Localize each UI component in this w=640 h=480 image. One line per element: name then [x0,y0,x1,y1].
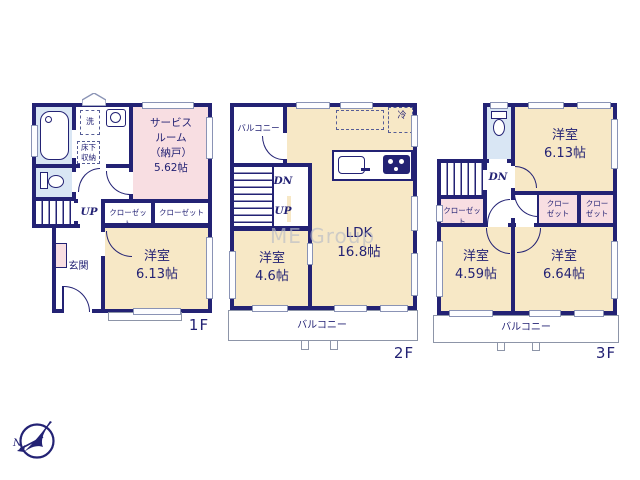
window-marker [490,102,508,109]
stairs [234,167,272,226]
entrance-label: 玄関 [56,260,101,274]
window-marker [206,237,213,299]
window-marker [529,310,561,317]
counter-space [336,110,384,130]
floor-label-2f: 2F [390,343,418,364]
bay-vent-marker [82,93,106,106]
stove-burner [394,167,398,171]
western-room-label: 洋室 6.13帖 [533,127,597,164]
door-opening [489,159,507,163]
door-opening [72,172,76,192]
window-marker [574,310,604,317]
dn-label: DN [485,171,511,183]
door-opening [511,200,515,218]
room-ldk [287,107,312,163]
stove-burner [388,159,393,164]
door-panel [62,286,64,312]
window-marker [611,241,618,299]
closet-label: クロー ゼット [541,199,575,219]
up-label: UP [271,205,295,217]
western-room-label: 洋室 4.6帖 [238,250,306,287]
faucet-icon [361,168,370,171]
door-opening [72,130,76,158]
outline-notch [433,99,483,159]
door-opening [101,232,105,256]
closet-label: クローゼット [442,206,482,227]
balcony-label: バルコニー [233,123,284,135]
wash-label: 洗 [80,116,100,127]
window-marker [142,102,194,109]
underfloor-label: 床下 収納 [77,143,100,163]
window-marker [528,102,564,109]
sink-bowl [110,112,121,123]
stove-icon [383,155,410,174]
stairs [441,163,483,195]
window-marker [340,102,373,109]
toilet-bowl [48,175,64,188]
window-marker [229,251,236,299]
up-label: UP [77,206,101,218]
toilet-bowl [493,119,505,136]
balcony-label: バルコニー [492,321,560,335]
window-marker [31,125,38,157]
north-label: N [12,438,23,449]
toilet-icon [40,172,48,189]
window-marker [380,305,408,312]
window-marker [577,102,611,109]
stairs [36,201,74,224]
compass-bird [24,421,52,452]
dn-label: DN [271,175,295,187]
toilet-icon [491,111,507,119]
service-room-label: サービス ルーム （納戸） 5.62帖 [133,116,209,176]
compass-icon: N [12,414,62,468]
window-marker [133,308,181,315]
watermark: ME Group [270,224,420,248]
window-marker [252,305,288,312]
door-opening [516,223,534,227]
western-room-label: 洋室 4.59帖 [443,248,509,285]
balcony-label: バルコニー [288,319,356,333]
stove-burner [399,159,404,164]
kitchen-sink-icon [338,156,365,174]
window-marker [436,241,443,297]
western-room-label: 洋室 6.13帖 [110,248,204,285]
door-opening [283,133,287,159]
floor-label-3f: 3F [592,343,620,364]
closet-label: クローゼット [156,208,207,219]
fridge-label: 冷 [394,110,410,123]
window-marker [334,305,367,312]
room-ldk [312,107,413,306]
bathtub-drain [45,116,52,123]
western-room-label: 洋室 6.64帖 [529,248,599,285]
closet-label: クロー ゼット [582,199,612,219]
door-opening [80,224,101,228]
window-marker [296,102,330,109]
window-marker [411,115,418,147]
closet-label: クローゼット [106,208,150,229]
window-marker [449,310,493,317]
floor-label-1f: 1F [186,315,212,336]
door-opening [80,164,106,168]
window-marker [411,253,418,296]
window-marker [611,119,618,169]
